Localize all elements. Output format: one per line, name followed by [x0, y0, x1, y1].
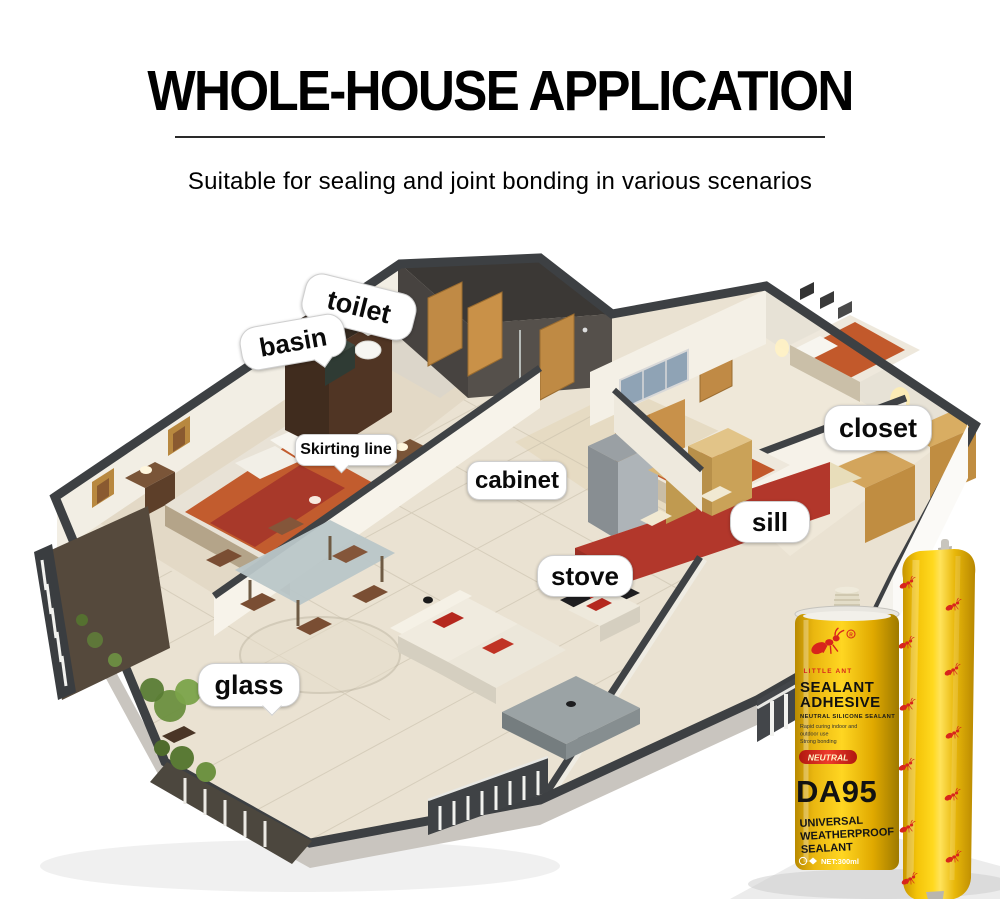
label-text: closet [839, 413, 917, 444]
product-desc-3: Strong bonding [800, 739, 837, 745]
model-text: DA95 [796, 774, 877, 809]
cartridge: R LITTLE ANT SEALANT ADHESIVE NEUTRAL SI… [795, 587, 899, 870]
neutral-badge-text: NEUTRAL [808, 753, 849, 763]
page: R LITTLE ANT SEALANT ADHESIVE NEUTRAL SI… [0, 0, 1000, 899]
product-desc-1: Rapid curing indoor and [800, 724, 857, 730]
label-bubble-stove: stove [537, 555, 633, 597]
page-subtitle: Suitable for sealing and joint bonding i… [0, 168, 1000, 196]
label-text: glass [214, 670, 283, 701]
label-text: Skirting line [300, 441, 392, 459]
label-bubble-closet: closet [824, 405, 932, 451]
label-bubble-glass: glass [198, 663, 300, 707]
sausage-pack [898, 539, 976, 899]
brand-text: LITTLE ANT [804, 668, 853, 675]
product-name-line2: ADHESIVE [800, 694, 881, 711]
svg-text:R: R [849, 633, 853, 639]
product-desc-2: outdoor use [800, 732, 828, 738]
product-packshot: R LITTLE ANT SEALANT ADHESIVE NEUTRAL SI… [730, 535, 1000, 899]
label-bubble-cabinet: cabinet [467, 461, 567, 500]
product-type: NEUTRAL SILICONE SEALANT [800, 714, 895, 720]
label-bubble-skirting-line: Skirting line [295, 434, 397, 466]
page-title: WHOLE-HOUSE APPLICATION [50, 58, 950, 124]
label-text: stove [551, 561, 619, 592]
label-text: cabinet [475, 467, 559, 495]
title-underline [175, 136, 825, 138]
label-text: sill [752, 507, 788, 538]
net-text: NET:300ml [821, 857, 859, 866]
header: WHOLE-HOUSE APPLICATION Suitable for sea… [0, 0, 1000, 196]
